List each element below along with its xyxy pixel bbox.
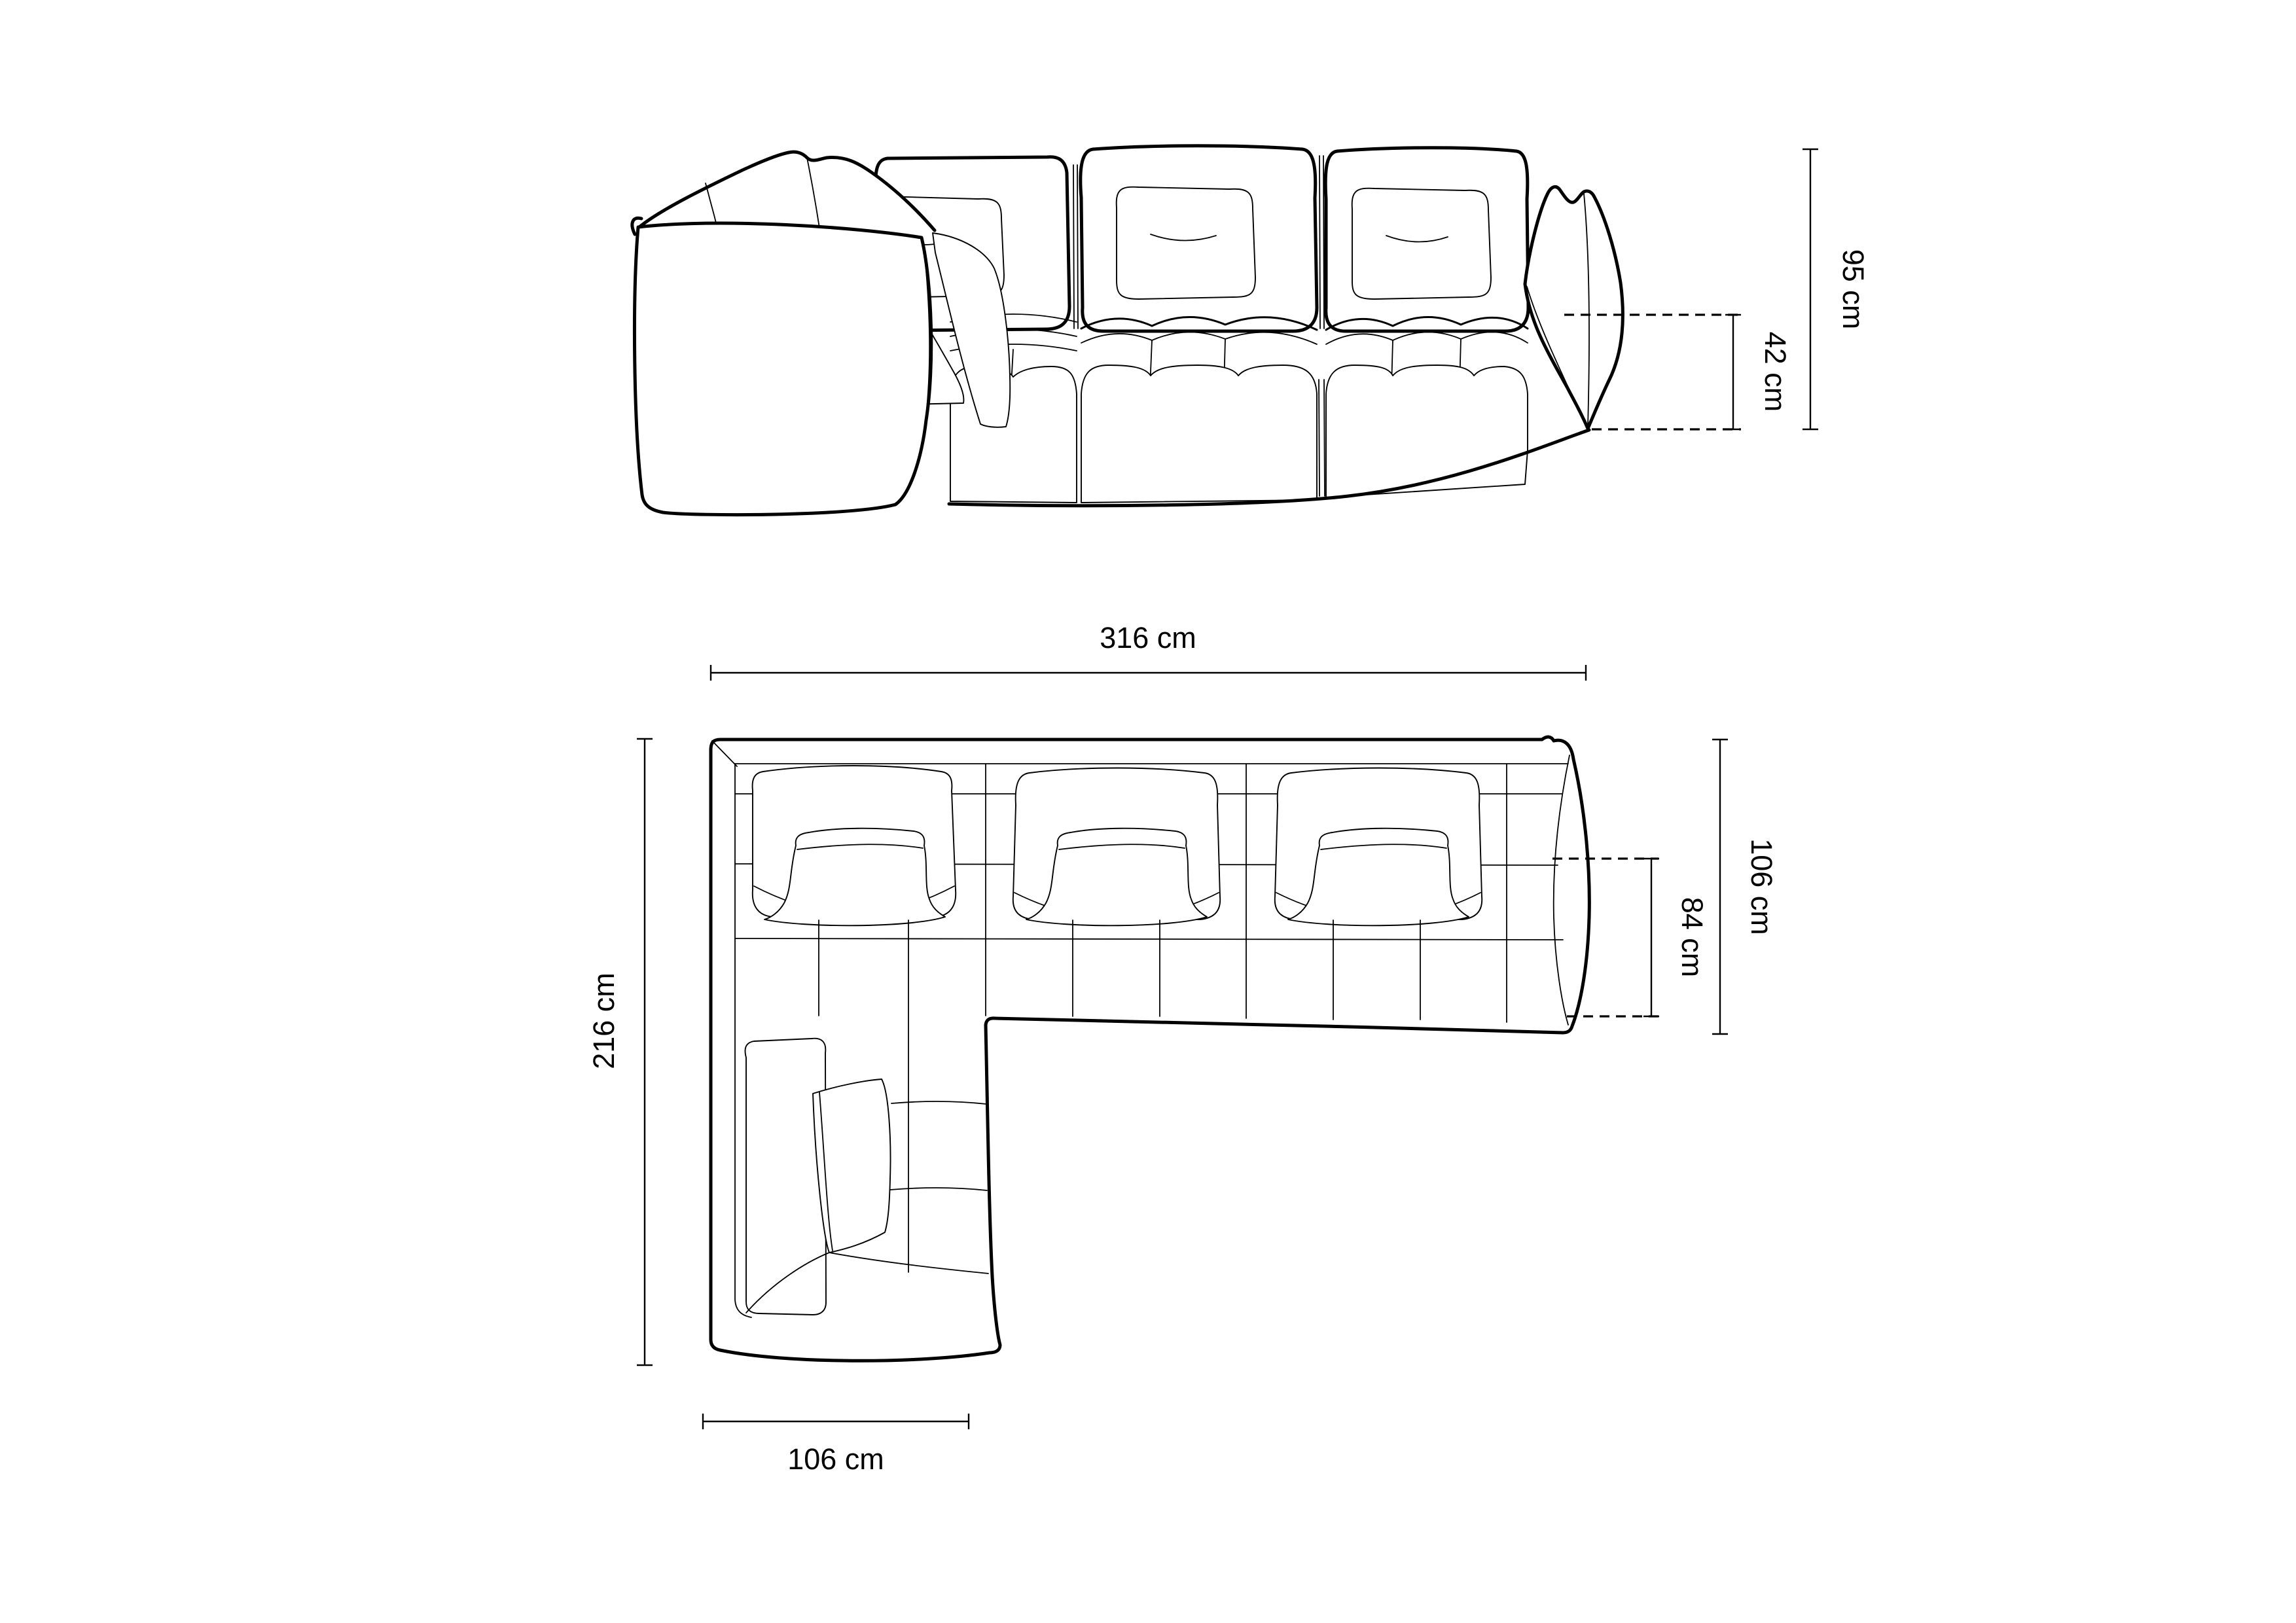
dimension-right-module-depth: 106 cm [1712,740,1778,1034]
corner-module-front [634,223,931,515]
top-view: 84 cm 106 cm 316 cm 216 cm 106 cm [587,621,1778,1476]
front-arm-cushion [1525,187,1623,429]
dimension-chaise-width: 106 cm [703,1414,969,1476]
dimension-total-height: 95 cm [1803,149,1870,429]
front-seat-base-module-b [1081,365,1317,503]
dimension-label-chaise-width: 106 cm [787,1442,884,1476]
dimension-label-seat-height: 42 cm [1759,332,1792,412]
front-module-seam-1 [1073,165,1078,329]
dimension-label-total-width: 316 cm [1100,621,1196,654]
dimension-total-width: 316 cm [711,621,1586,681]
front-seat-base-module-c [1326,365,1528,497]
dimension-label-total-height: 95 cm [1837,249,1870,330]
dimension-label-right-module-depth: 106 cm [1745,838,1778,935]
chaise-side-cushion [745,1039,827,1315]
technical-drawing: 42 cm 95 cm [0,0,2296,1623]
front-seat-pillow-2 [1117,187,1255,299]
front-seat-module-gap [1319,380,1325,496]
dimension-inner-seat-depth: 84 cm [1643,859,1709,1016]
dimension-seat-height: 42 cm [1725,315,1792,429]
dimension-total-depth: 216 cm [587,739,653,1365]
front-module-seam-2 [1319,156,1324,329]
dimension-label-inner-seat-depth: 84 cm [1676,897,1709,978]
front-view: 42 cm 95 cm [632,146,1870,515]
front-seat-pillow-3 [1352,188,1491,299]
dimension-label-total-depth: 216 cm [587,972,620,1069]
